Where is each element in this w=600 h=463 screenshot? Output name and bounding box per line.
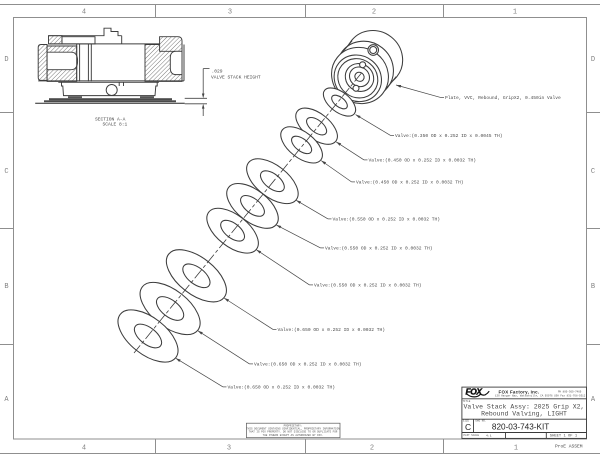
svg-text:C: C: [4, 168, 8, 176]
svg-text:Rebound Valving, LIGHT: Rebound Valving, LIGHT: [481, 411, 567, 418]
svg-text:4: 4: [82, 9, 86, 17]
svg-text:Valve:(0.550 OD x 0.252 ID x 0: Valve:(0.550 OD x 0.252 ID x 0.0032 TH): [314, 283, 422, 289]
svg-text:C: C: [465, 422, 471, 432]
svg-text:TITLE: TITLE: [463, 400, 471, 403]
svg-text:SECTION A-A: SECTION A-A: [95, 116, 126, 122]
svg-text:820-03-743-KIT: 820-03-743-KIT: [492, 423, 549, 432]
svg-text:Valve:(0.450 OD x 0.252 ID x 0: Valve:(0.450 OD x 0.252 ID x 0.0032 TH): [356, 180, 464, 186]
svg-text:4:1: 4:1: [486, 433, 492, 437]
svg-text:1: 1: [513, 9, 517, 17]
svg-text:PLOT SCALE: PLOT SCALE: [464, 434, 480, 437]
svg-text:.029: .029: [212, 69, 223, 75]
svg-text:Valve:(0.550 OD x 0.252 ID x 0: Valve:(0.550 OD x 0.252 ID x 0.0032 TH): [333, 217, 441, 223]
svg-text:SCALE 8:1: SCALE 8:1: [103, 122, 128, 128]
svg-text:3: 3: [228, 9, 232, 17]
svg-text:2: 2: [372, 9, 376, 17]
svg-text:B: B: [4, 283, 8, 291]
svg-text:4: 4: [82, 445, 86, 453]
svg-text:SHEET 1 OF 1: SHEET 1 OF 1: [550, 435, 578, 439]
svg-text:Valve:(0.650 OD x 0.252 ID x 0: Valve:(0.650 OD x 0.252 ID x 0.0032 TH): [278, 327, 386, 333]
svg-text:3: 3: [227, 445, 231, 453]
svg-text:THE OTHERS EXCEPT AS AUTHORIZE: THE OTHERS EXCEPT AS AUTHORIZED BY FOX.: [263, 434, 324, 437]
svg-text:ProE ASSEM: ProE ASSEM: [555, 443, 583, 449]
svg-text:2: 2: [370, 445, 374, 453]
svg-text:PH 800-369-7469: PH 800-369-7469: [558, 390, 582, 393]
svg-text:DWG NO.: DWG NO.: [476, 420, 487, 423]
svg-text:D: D: [4, 56, 8, 64]
svg-text:VALVE STACK HEIGHT: VALVE STACK HEIGHT: [211, 75, 261, 81]
svg-text:Valve:(0.650 OD x 0.252 ID x 0: Valve:(0.650 OD x 0.252 ID x 0.0032 TH): [254, 362, 362, 368]
svg-text:Valve Stack Assy: 2025 Grip X2: Valve Stack Assy: 2025 Grip X2,: [464, 404, 585, 411]
svg-text:C: C: [591, 168, 595, 176]
svg-text:Plate, VVC, Rebound, GripX2, 0: Plate, VVC, Rebound, GripX2, 0.450in Val…: [445, 95, 561, 101]
svg-text:Valve:(0.450 OD x 0.252 ID x 0: Valve:(0.450 OD x 0.252 ID x 0.0032 TH): [369, 158, 477, 164]
svg-text:Valve:(0.550 OD x 0.252 ID x 0: Valve:(0.550 OD x 0.252 ID x 0.0032 TH): [325, 246, 433, 252]
svg-text:D: D: [591, 56, 595, 64]
svg-text:1: 1: [514, 445, 518, 453]
svg-text:Valve:(0.350 OD x 0.252 ID x 0: Valve:(0.350 OD x 0.252 ID x 0.0045 TH): [395, 133, 503, 139]
svg-text:B: B: [591, 283, 595, 291]
svg-text:Valve:(0.650 OD x 0.252 ID x 0: Valve:(0.650 OD x 0.252 ID x 0.0032 TH): [228, 385, 336, 391]
svg-text:130 Hangar Way, Watsonville, C: 130 Hangar Way, Watsonville, CA 95076 US…: [495, 393, 586, 397]
